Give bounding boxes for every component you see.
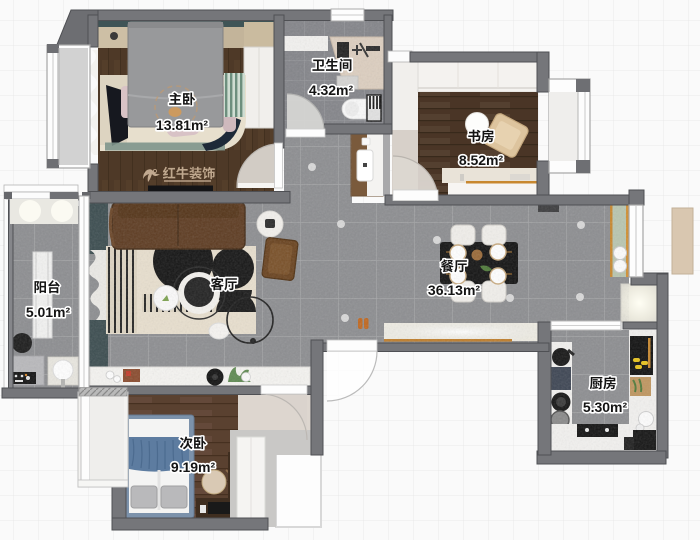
svg-text:9.19m²: 9.19m² bbox=[171, 459, 216, 475]
svg-text:36.13m²: 36.13m² bbox=[428, 282, 480, 298]
svg-text:8.52m²: 8.52m² bbox=[459, 152, 504, 168]
svg-text:13.81m²: 13.81m² bbox=[156, 117, 208, 133]
svg-text:5.30m²: 5.30m² bbox=[583, 399, 628, 415]
svg-text:4.32m²: 4.32m² bbox=[309, 82, 354, 98]
svg-text:5.01m²: 5.01m² bbox=[26, 304, 71, 320]
